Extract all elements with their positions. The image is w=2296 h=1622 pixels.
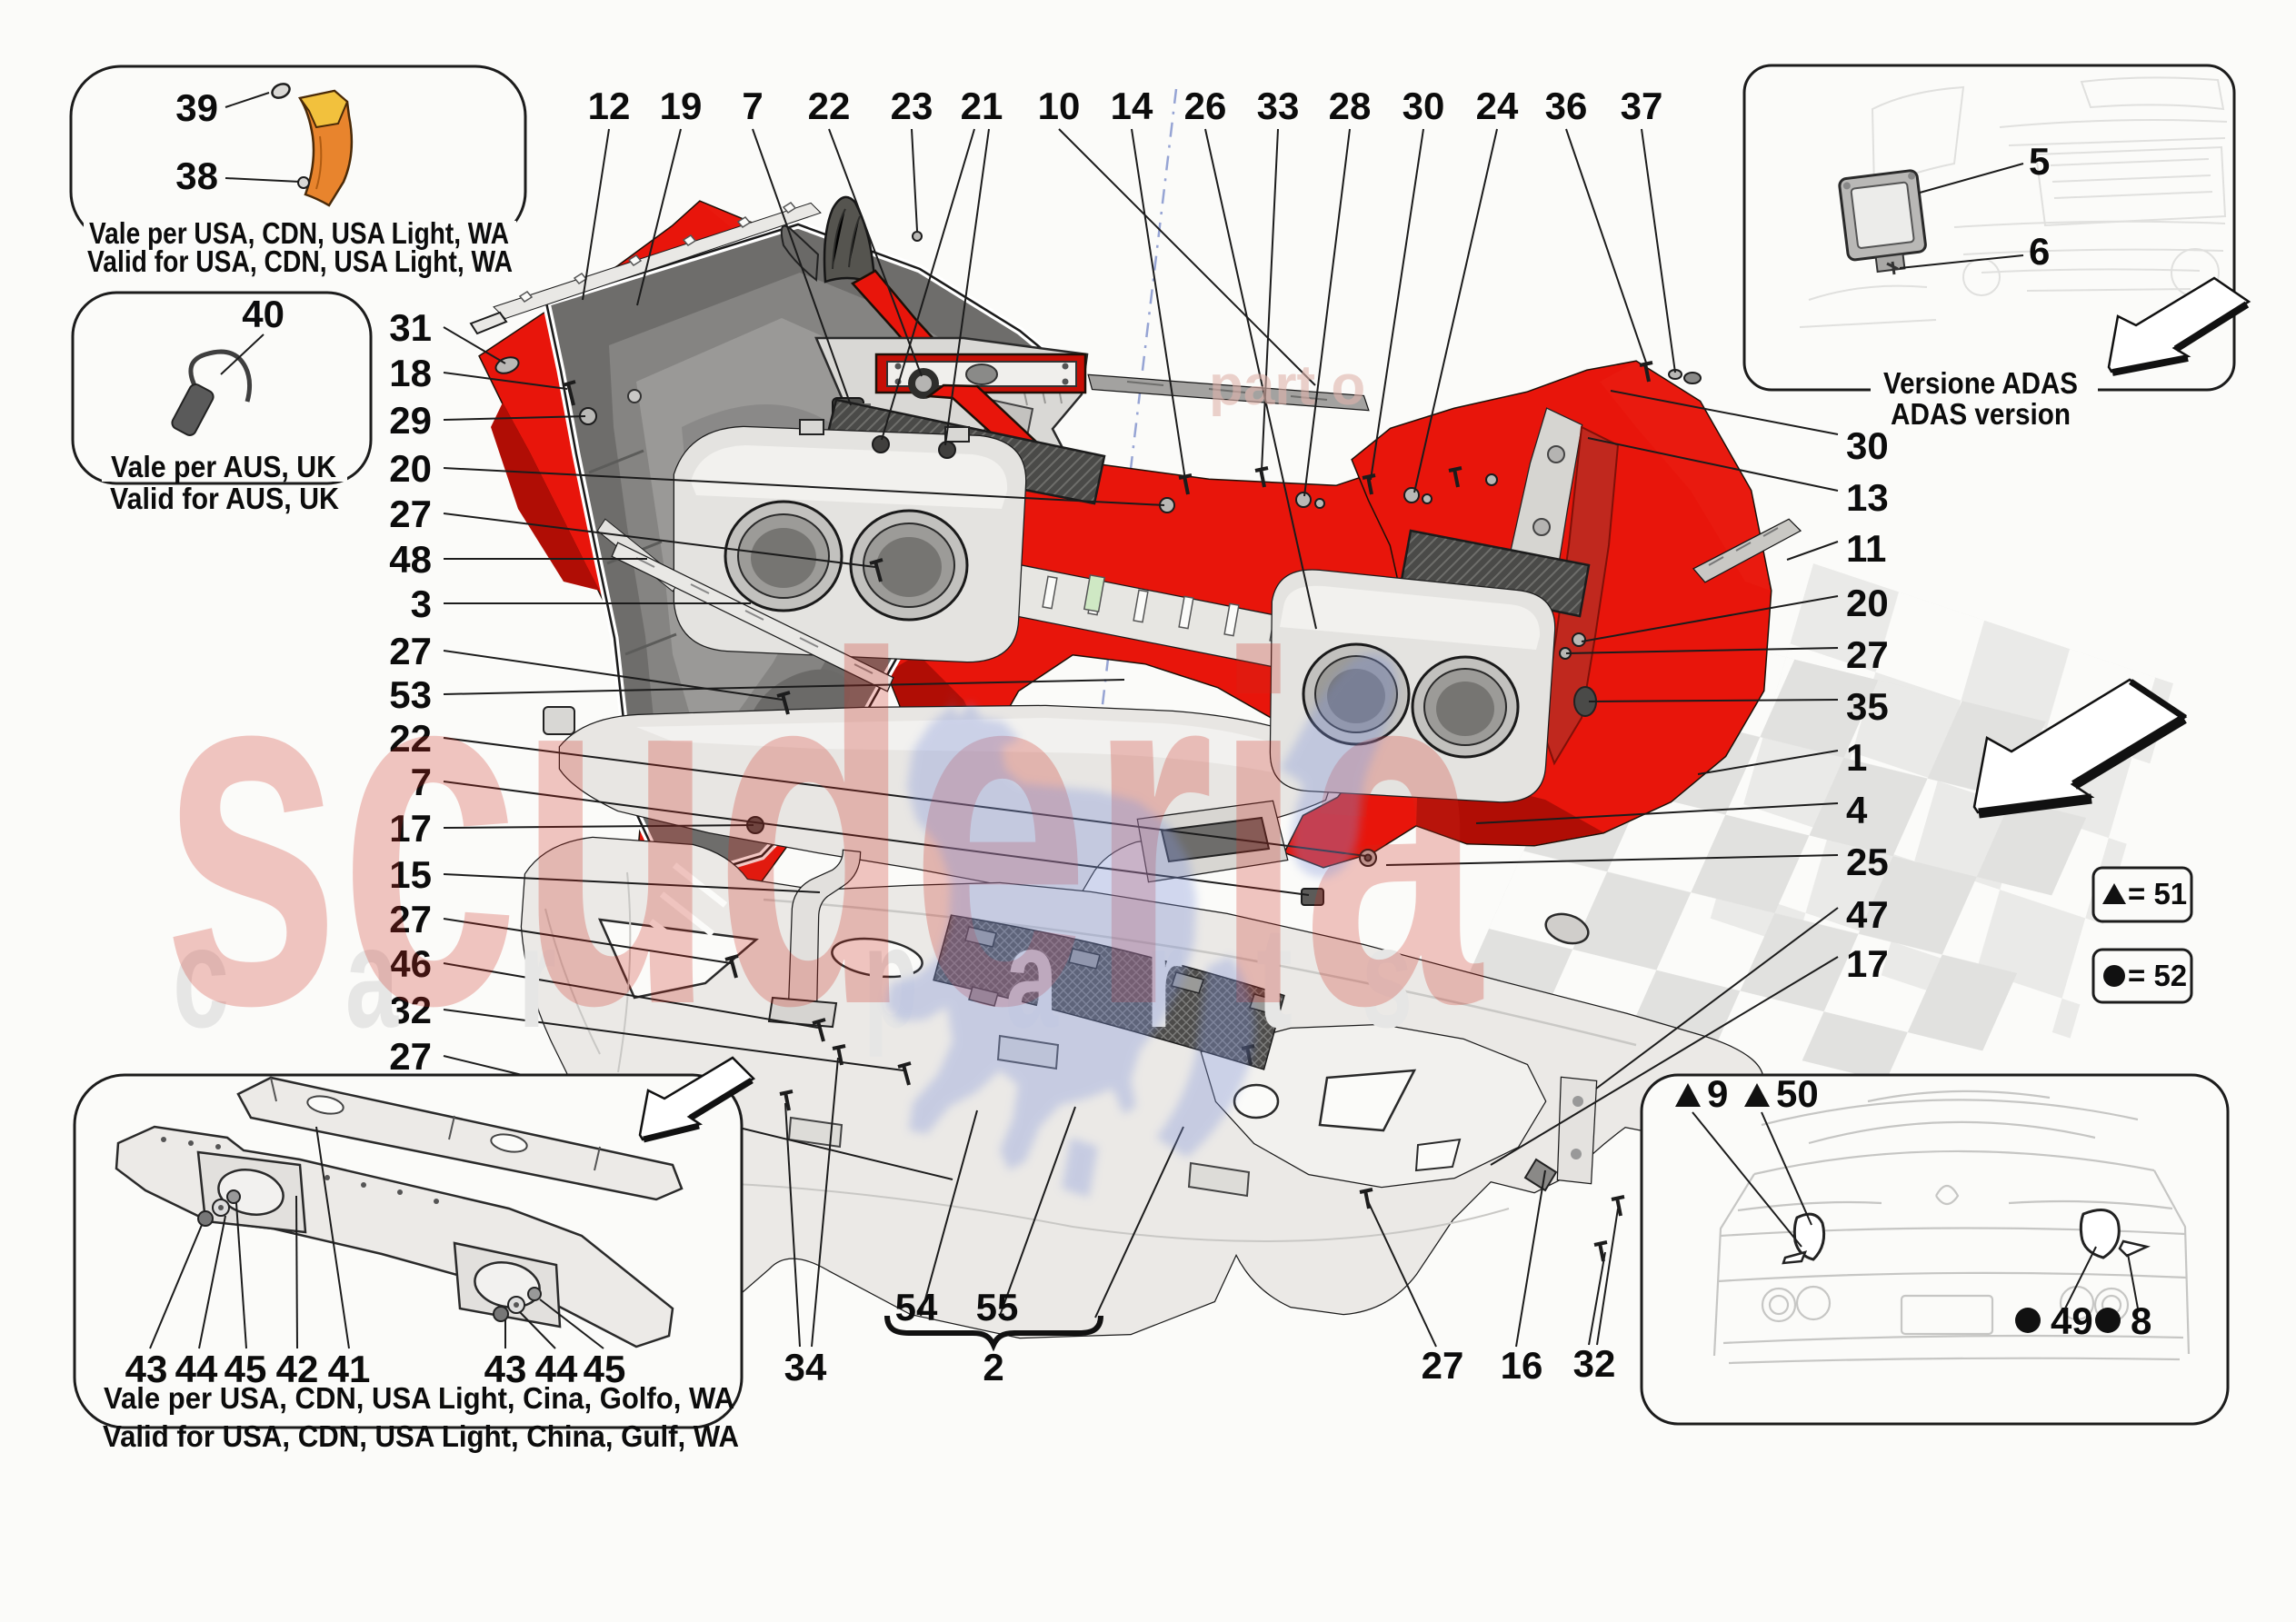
svg-text:38: 38 bbox=[175, 154, 218, 197]
svg-text:Versione ADAS: Versione ADAS bbox=[1883, 366, 2078, 400]
svg-text:30: 30 bbox=[1403, 85, 1445, 127]
svg-text:Vale per AUS, UK: Vale per AUS, UK bbox=[111, 450, 336, 483]
svg-text:part o: part o bbox=[1209, 354, 1365, 417]
svg-text:6: 6 bbox=[2029, 230, 2050, 273]
svg-text:26: 26 bbox=[1184, 85, 1227, 127]
svg-text:32: 32 bbox=[1573, 1342, 1616, 1385]
svg-text:14: 14 bbox=[1111, 85, 1153, 127]
svg-text:49: 49 bbox=[2051, 1299, 2093, 1342]
svg-text:5: 5 bbox=[2029, 140, 2050, 183]
svg-text:23: 23 bbox=[891, 85, 933, 127]
svg-text:ADAS version: ADAS version bbox=[1891, 397, 2071, 431]
svg-text:36: 36 bbox=[1545, 85, 1588, 127]
svg-text:scuderia: scuderia bbox=[162, 555, 1483, 1108]
svg-text:21: 21 bbox=[961, 85, 1003, 127]
svg-text:11: 11 bbox=[1846, 527, 1886, 570]
svg-text:17: 17 bbox=[1846, 942, 1889, 985]
svg-text:30: 30 bbox=[1846, 424, 1889, 467]
svg-text:12: 12 bbox=[588, 85, 631, 127]
svg-text:1: 1 bbox=[1846, 736, 1867, 779]
svg-text:22: 22 bbox=[808, 85, 851, 127]
svg-text:31: 31 bbox=[389, 306, 432, 349]
svg-text:8: 8 bbox=[2131, 1299, 2151, 1342]
svg-text:10: 10 bbox=[1038, 85, 1081, 127]
svg-text:27: 27 bbox=[1422, 1344, 1464, 1387]
svg-text:= 52: = 52 bbox=[2128, 959, 2187, 992]
svg-text:= 51: = 51 bbox=[2128, 877, 2187, 911]
svg-text:29: 29 bbox=[389, 399, 432, 442]
svg-text:50: 50 bbox=[1776, 1072, 1819, 1115]
svg-text:35: 35 bbox=[1846, 685, 1889, 728]
svg-text:54: 54 bbox=[895, 1286, 938, 1328]
svg-text:28: 28 bbox=[1329, 85, 1372, 127]
svg-text:27: 27 bbox=[1846, 633, 1889, 676]
svg-text:55: 55 bbox=[976, 1286, 1019, 1328]
svg-text:18: 18 bbox=[389, 352, 432, 394]
svg-text:7: 7 bbox=[742, 85, 763, 127]
svg-text:Valid for USA, CDN, USA Light,: Valid for USA, CDN, USA Light, China, Gu… bbox=[103, 1419, 739, 1453]
svg-text:25: 25 bbox=[1846, 841, 1889, 883]
svg-text:2: 2 bbox=[983, 1346, 1003, 1388]
svg-text:24: 24 bbox=[1476, 85, 1519, 127]
svg-text:37: 37 bbox=[1621, 85, 1663, 127]
svg-text:9: 9 bbox=[1707, 1072, 1728, 1115]
svg-text:Valid for USA, CDN, USA Light,: Valid for USA, CDN, USA Light, WA bbox=[87, 244, 513, 278]
svg-text:40: 40 bbox=[242, 293, 285, 335]
svg-text:16: 16 bbox=[1501, 1344, 1543, 1387]
svg-text:Valid for AUS, UK: Valid for AUS, UK bbox=[110, 482, 339, 515]
svg-text:39: 39 bbox=[175, 86, 218, 129]
svg-text:20: 20 bbox=[1846, 582, 1889, 624]
svg-text:Vale per USA, CDN, USA Light,: Vale per USA, CDN, USA Light, Cina, Golf… bbox=[104, 1381, 734, 1415]
svg-text:20: 20 bbox=[389, 447, 432, 490]
svg-text:19: 19 bbox=[660, 85, 703, 127]
svg-text:13: 13 bbox=[1846, 476, 1889, 519]
svg-text:34: 34 bbox=[784, 1346, 827, 1388]
svg-text:27: 27 bbox=[389, 493, 432, 535]
svg-text:33: 33 bbox=[1257, 85, 1300, 127]
svg-text:4: 4 bbox=[1846, 789, 1868, 831]
svg-text:47: 47 bbox=[1846, 893, 1889, 936]
